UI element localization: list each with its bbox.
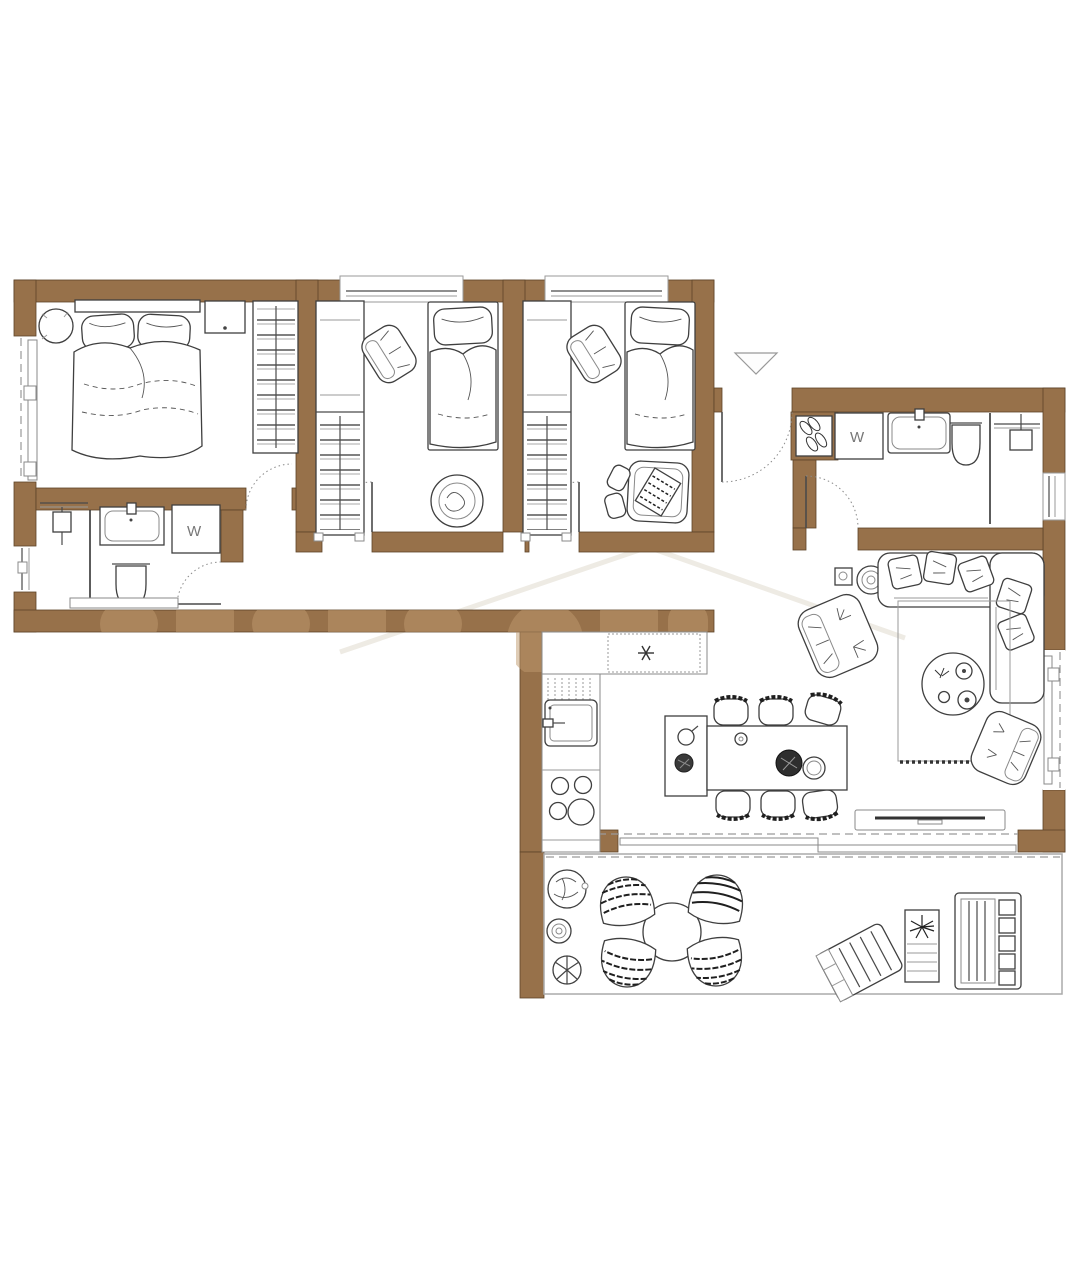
potted-plant-3	[553, 956, 581, 984]
double-bed	[72, 300, 202, 459]
sink	[100, 503, 164, 545]
master-bedroom-door	[246, 464, 292, 510]
dining-area	[707, 691, 847, 821]
round-side-table	[39, 309, 73, 343]
bathroom-2: W	[835, 409, 1040, 524]
single-bed	[428, 302, 498, 450]
play-mat	[602, 459, 689, 524]
nightstand	[205, 301, 245, 333]
island-sideboard	[665, 716, 707, 796]
round-bassinet	[431, 475, 483, 527]
counter-top-run	[542, 632, 707, 674]
washer-label: W	[187, 523, 202, 540]
entry-hall	[796, 415, 832, 456]
wardrobe	[521, 301, 571, 541]
kettle-icon	[678, 729, 694, 745]
washing-machine: W	[172, 505, 220, 553]
master-window	[21, 338, 37, 480]
living-room-window	[1043, 650, 1065, 790]
single-bed	[625, 302, 695, 450]
terrace	[544, 854, 1062, 1002]
bedroom2-window	[340, 276, 463, 302]
armchair-2	[967, 707, 1045, 789]
bathroom1-window	[18, 548, 29, 590]
kids-bedroom-2	[521, 301, 695, 541]
floor-plan-drawing: W W	[0, 0, 1080, 1280]
shower	[40, 503, 90, 598]
potted-plant-2	[547, 919, 571, 943]
low-shelf	[70, 598, 178, 608]
master-bedroom	[39, 300, 298, 459]
toilet	[950, 423, 982, 465]
bathroom2-window	[1043, 473, 1065, 520]
shoe-cabinet	[796, 415, 832, 456]
armchair	[357, 321, 420, 387]
washer-label: W	[850, 429, 865, 446]
bedroom3-window	[545, 276, 668, 302]
planter-box	[905, 910, 939, 982]
shower	[990, 413, 1040, 524]
front-door	[722, 412, 792, 482]
entrance-arrow-icon	[735, 353, 777, 374]
armchair	[562, 321, 625, 387]
washing-machine: W	[835, 413, 883, 459]
wardrobe	[314, 301, 364, 541]
kids-bedroom-1	[314, 301, 498, 541]
floor-plan-page: W W	[0, 0, 1080, 1280]
garden-bench	[955, 893, 1021, 989]
bathroom-1: W	[40, 503, 220, 608]
coffee-table	[922, 653, 984, 715]
tv-sideboard	[855, 810, 1005, 830]
master-wardrobe	[253, 301, 298, 453]
kitchen-sink	[543, 700, 597, 746]
bathroom1-door	[177, 562, 221, 606]
kitchen	[542, 632, 707, 852]
sink	[888, 409, 950, 453]
